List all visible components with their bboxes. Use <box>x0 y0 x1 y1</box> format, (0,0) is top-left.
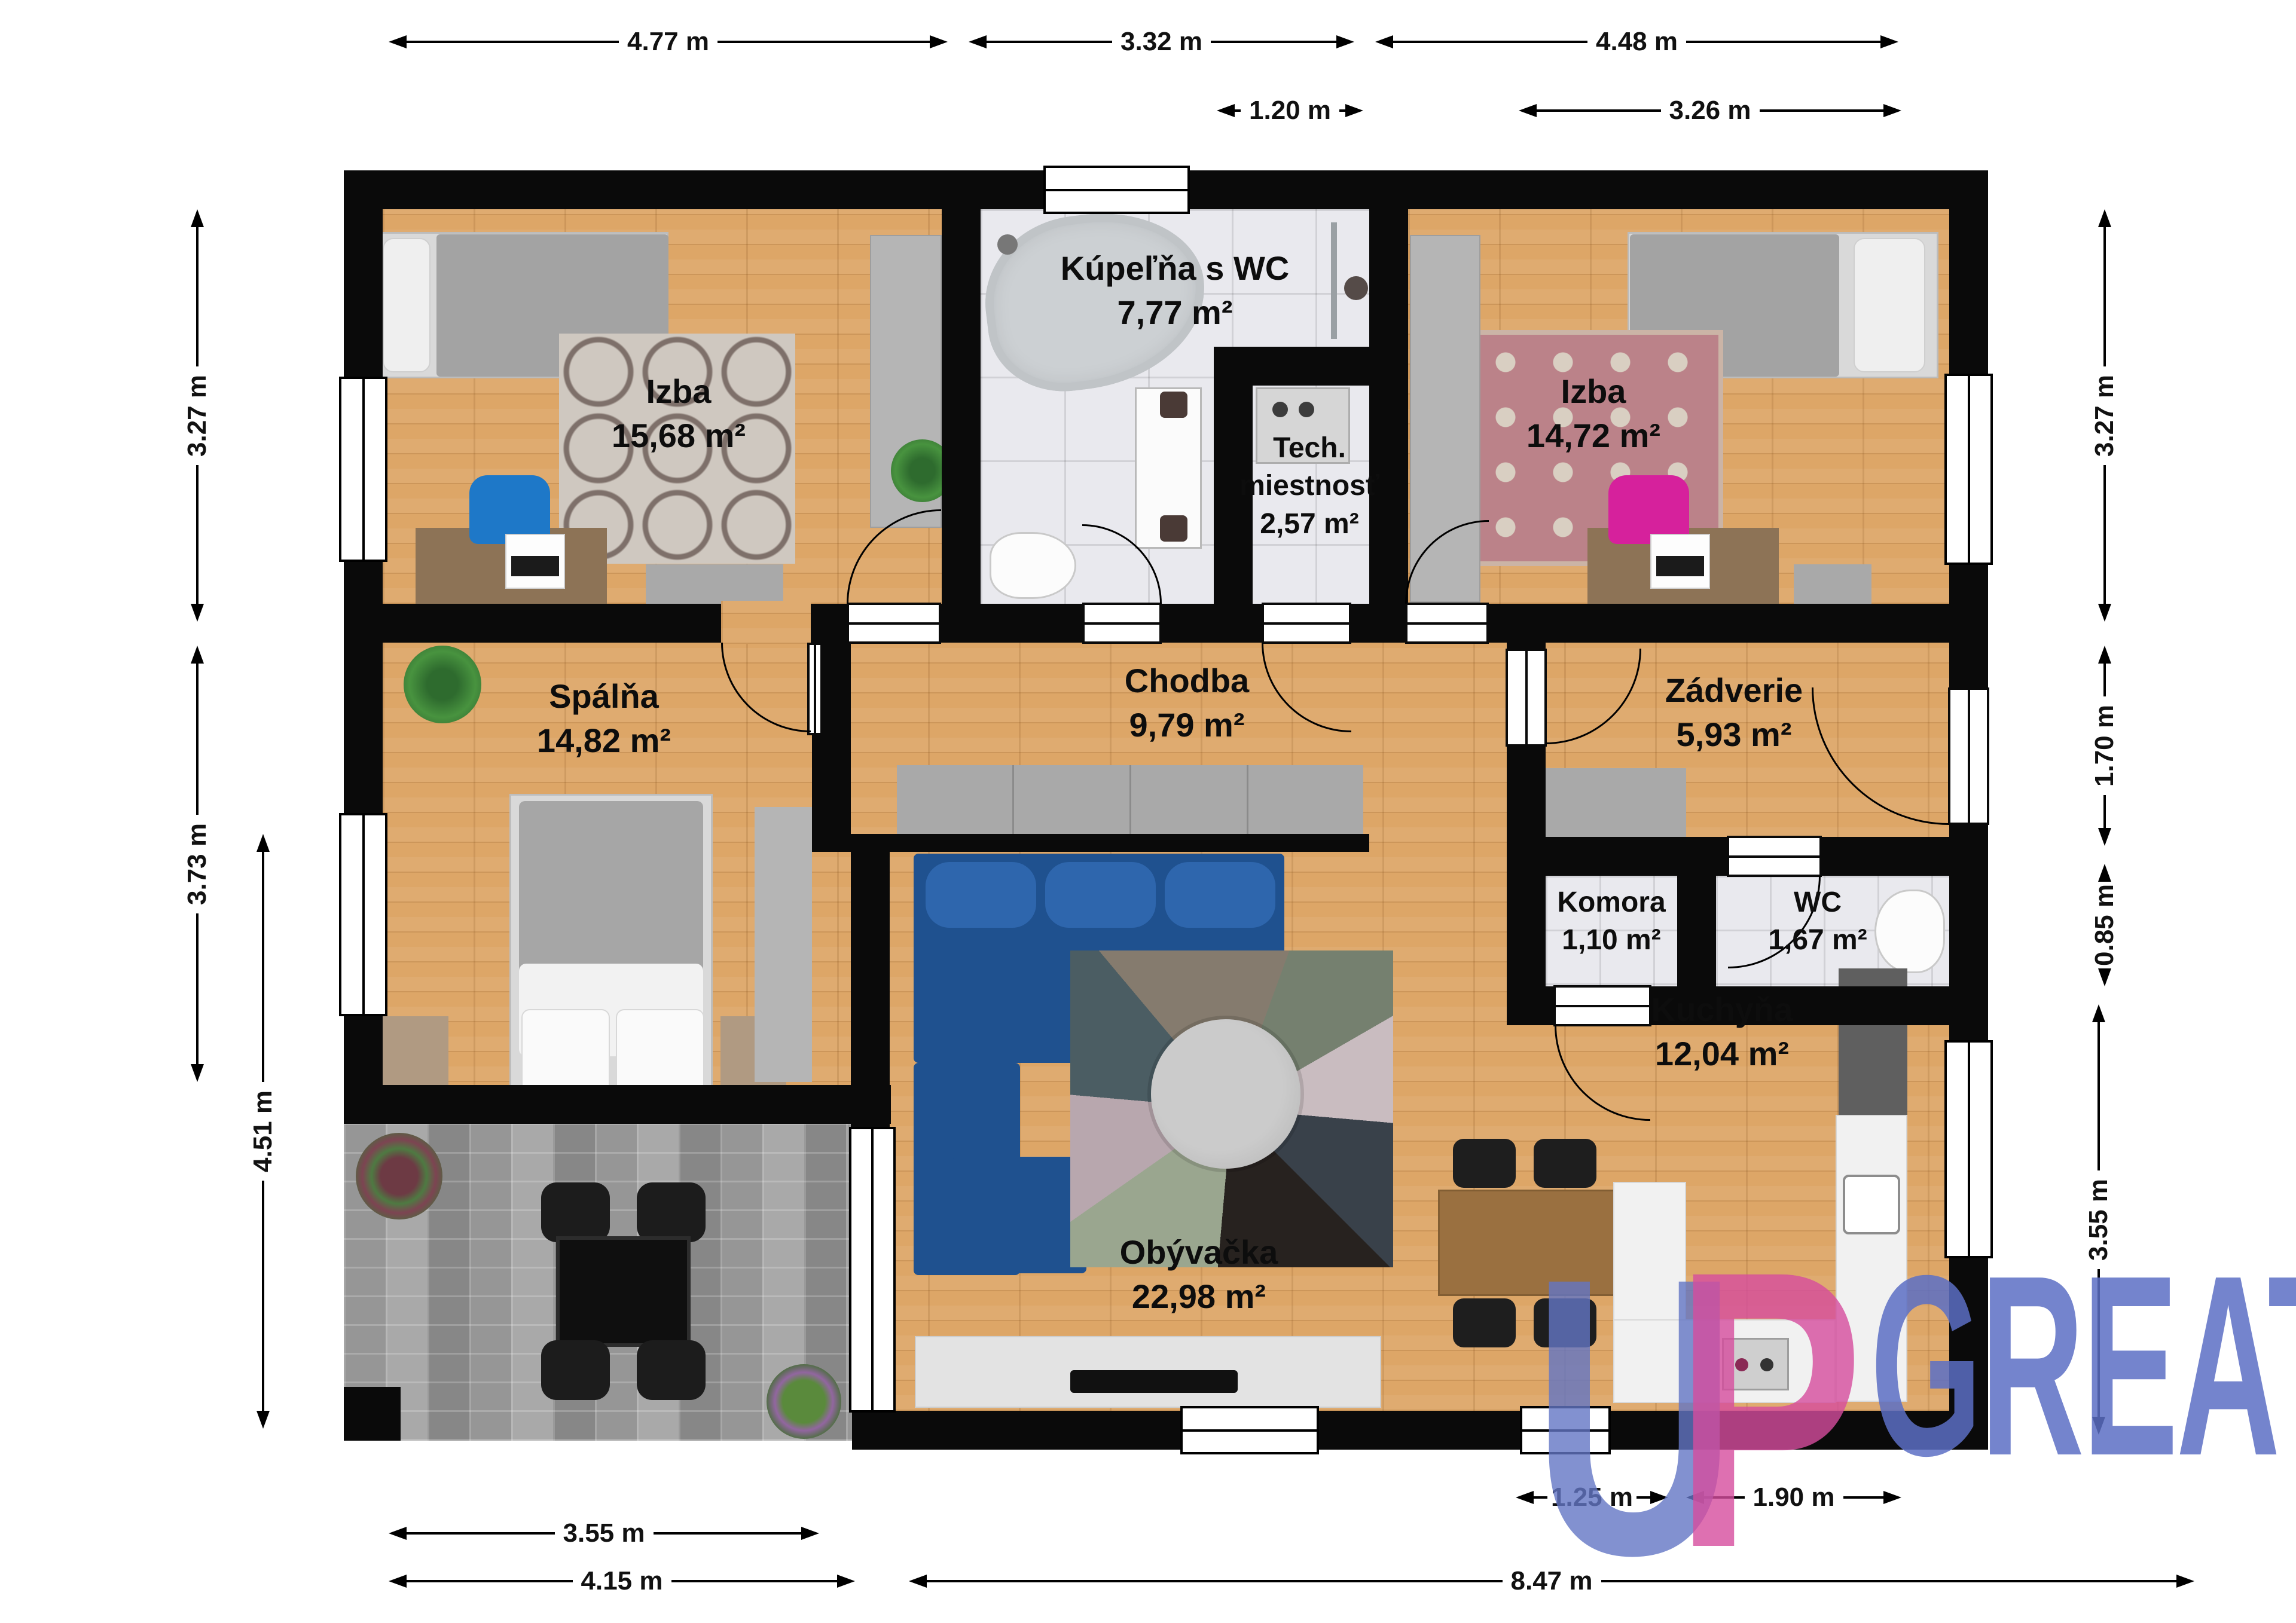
room-name: Komora <box>1557 884 1665 921</box>
dim-label: 3.32 m <box>1112 27 1211 57</box>
dim-label: 4.15 m <box>573 1566 671 1596</box>
toilet <box>990 532 1076 599</box>
toilet <box>1874 890 1945 973</box>
room-label-komora: Komora 1,10 m² <box>1557 884 1665 959</box>
dim-sub-1: 1.20 m <box>1217 96 1363 125</box>
wall-komora-wc <box>1677 876 1716 986</box>
floor-plan: Izba 15,68 m² Kúpeľňa s WC 7,77 m² Tech.… <box>0 0 2296 1623</box>
wall-row-divider <box>383 604 1949 643</box>
tv <box>1070 1370 1238 1393</box>
window <box>1043 166 1190 214</box>
room-name: Izba <box>1526 369 1660 414</box>
washer-knob-icon <box>1272 402 1288 417</box>
dim-top-2: 3.32 m <box>969 27 1354 56</box>
patio-chair <box>637 1340 706 1400</box>
dim-left-3: 4.51 m <box>249 834 277 1429</box>
bed-pillow <box>383 238 430 372</box>
sofa-cushion <box>926 862 1036 928</box>
dim-top-3: 4.48 m <box>1375 27 1898 56</box>
room-name: Kúpeľňa s WC <box>1061 246 1289 291</box>
sofa-ottoman <box>952 1157 1086 1273</box>
room-label-chodba: Chodba 9,79 m² <box>1125 659 1249 747</box>
dim-top-1: 4.77 m <box>389 27 948 56</box>
coffee-table-round <box>1151 1019 1300 1169</box>
entry-cabinet <box>1522 768 1686 837</box>
plant-icon <box>404 646 481 723</box>
room-label-tech: Tech. miestnosť 2,57 m² <box>1239 429 1379 543</box>
wall-bedroom-bottom <box>344 1085 891 1124</box>
arrow-right-icon <box>930 35 948 48</box>
door-leaf <box>1405 603 1489 644</box>
room-label-kuchyna: Kuchyňa 12,04 m² <box>1651 988 1793 1076</box>
vanity-fixture <box>1160 392 1187 418</box>
room-area: 9,79 m² <box>1125 703 1249 747</box>
dresser <box>646 564 783 604</box>
door-leaf <box>1553 985 1651 1026</box>
room-label-izba2: Izba 14,72 m² <box>1526 369 1660 458</box>
dresser <box>1794 564 1871 604</box>
room-name: miestnosť <box>1239 467 1379 505</box>
dim-bottom-4: 4.15 m <box>389 1567 855 1596</box>
window <box>339 377 387 562</box>
arrow-down-icon <box>191 604 204 622</box>
dining-chair <box>1534 1139 1596 1188</box>
dim-label: 0.85 m <box>2090 882 2120 968</box>
door-leaf <box>847 603 941 644</box>
wall-living-left <box>851 852 890 1139</box>
dim-left-1: 3.27 m <box>183 209 212 622</box>
wall-hall-living <box>851 834 1369 852</box>
room-label-zadverie: Zádverie 5,93 m² <box>1665 668 1803 757</box>
dim-bottom-3: 3.55 m <box>389 1519 819 1548</box>
patio-chair <box>541 1182 610 1242</box>
dim-right-2: 1.70 m <box>2090 646 2119 846</box>
room-area: 14,72 m² <box>1526 414 1660 458</box>
shower-head-icon <box>1344 276 1368 300</box>
bath-faucet-icon <box>997 234 1018 255</box>
room-name: WC <box>1768 884 1867 921</box>
dim-label: 1.70 m <box>2090 696 2120 795</box>
door-leaf <box>1506 649 1547 747</box>
room-label-wc: WC 1,67 m² <box>1768 884 1867 959</box>
dim-label: 3.27 m <box>182 366 212 465</box>
dim-label: 3.27 m <box>2090 366 2120 465</box>
laptop-keyboard <box>1656 556 1704 576</box>
wall-bath-room2 <box>1369 209 1408 643</box>
room-area: 22,98 m² <box>1120 1274 1278 1319</box>
door-opening <box>721 601 811 644</box>
laptop-keyboard <box>511 556 559 576</box>
sofa-cushion <box>1045 862 1156 928</box>
dim-label: 4.51 m <box>248 1082 278 1181</box>
door-leaf <box>1727 836 1822 877</box>
wall-tech-top <box>1214 347 1408 386</box>
room-area: 1,10 m² <box>1557 921 1665 959</box>
dim-label: 1.20 m <box>1241 96 1339 126</box>
arrow-left-icon <box>389 35 407 48</box>
arrow-up-icon <box>191 209 204 227</box>
room-name: Chodba <box>1125 659 1249 703</box>
room-name: Zádverie <box>1665 668 1803 713</box>
wall-room1-bath <box>942 209 981 643</box>
flower-bush-icon <box>767 1364 841 1439</box>
room-area: 15,68 m² <box>612 414 746 458</box>
wall-komora-left <box>1507 876 1546 1025</box>
dim-right-1: 3.27 m <box>2090 209 2119 622</box>
room-label-kupelna: Kúpeľňa s WC 7,77 m² <box>1061 246 1289 335</box>
towel-rail-icon <box>1331 222 1337 339</box>
sliding-terrace-door <box>849 1127 896 1413</box>
logo-up-p: P <box>1674 1212 1864 1607</box>
room-area: 12,04 m² <box>1651 1032 1793 1076</box>
patio-chair <box>637 1182 706 1242</box>
bed-pillow <box>1854 238 1925 372</box>
hallway-wardrobe <box>897 765 1363 834</box>
room-area: 2,57 m² <box>1239 505 1379 543</box>
room-label-obyvacka: Obývačka 22,98 m² <box>1120 1230 1278 1319</box>
dim-label: 3.26 m <box>1661 96 1760 126</box>
dining-chair <box>1453 1298 1516 1347</box>
window <box>339 813 387 1016</box>
room-label-izba1: Izba 15,68 m² <box>612 369 746 458</box>
room-name: Tech. <box>1239 429 1379 467</box>
patio-chair <box>541 1340 610 1400</box>
vanity-fixture <box>1160 515 1187 542</box>
window <box>1180 1406 1319 1454</box>
wardrobe <box>755 807 812 1082</box>
wall-terrace-stub <box>344 1387 401 1441</box>
room-area: 5,93 m² <box>1665 713 1803 757</box>
room-area: 14,82 m² <box>537 719 671 763</box>
room-name: Kuchyňa <box>1651 988 1793 1032</box>
room-name: Spálňa <box>537 674 671 719</box>
dim-label: 3.55 m <box>555 1518 654 1548</box>
room-name: Izba <box>612 369 746 414</box>
window <box>1944 374 1993 565</box>
dim-right-3: 0.85 m <box>2090 864 2119 983</box>
flower-wreath-icon <box>356 1133 442 1219</box>
patio-table <box>556 1236 691 1347</box>
logo-great: GREAT <box>1870 1237 2296 1494</box>
dim-label: 3.73 m <box>182 815 212 913</box>
door-leaf <box>1262 603 1351 644</box>
dining-chair <box>1453 1139 1516 1188</box>
dim-left-2: 3.73 m <box>183 646 212 1082</box>
door-leaf <box>1082 603 1162 644</box>
washer-knob-icon <box>1299 402 1314 417</box>
entrance-door-leaf <box>1948 687 1989 825</box>
dim-sub-2: 3.26 m <box>1519 96 1901 125</box>
sofa-cushion <box>1165 862 1275 928</box>
room-area: 7,77 m² <box>1061 291 1289 335</box>
room-name: Obývačka <box>1120 1230 1278 1274</box>
dim-label: 4.77 m <box>619 27 717 57</box>
room-area: 1,67 m² <box>1768 921 1867 959</box>
dim-label: 4.48 m <box>1587 27 1686 57</box>
room-label-spalna: Spálňa 14,82 m² <box>537 674 671 763</box>
